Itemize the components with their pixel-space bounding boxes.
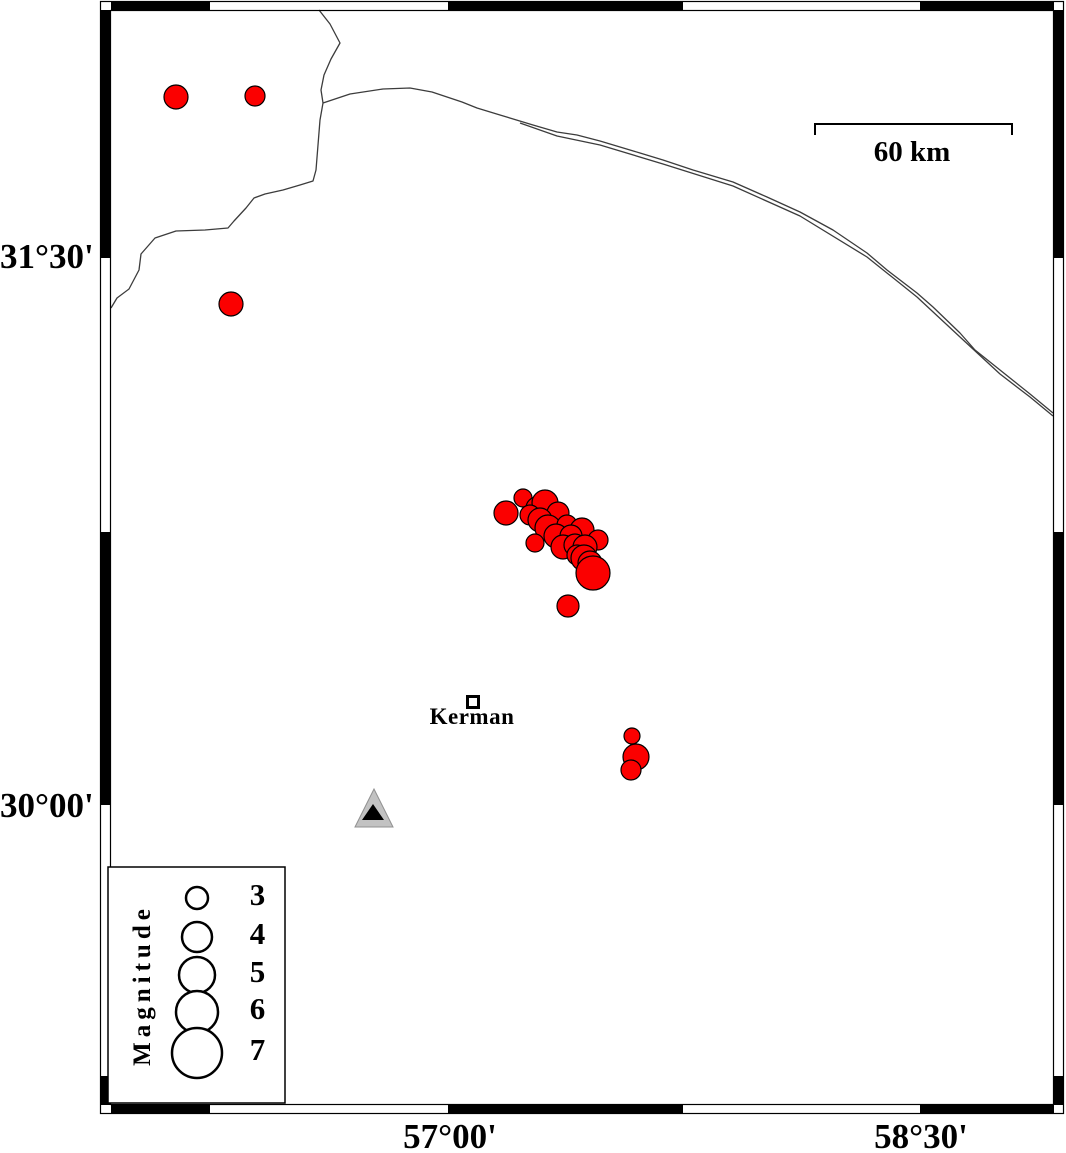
legend-circle-mag-4 (182, 922, 212, 952)
epicenter-dot (245, 86, 265, 106)
frame-tick-segment (448, 2, 683, 10)
scale-bar-bracket (815, 124, 1012, 135)
epicenter-dot (494, 501, 518, 525)
frame-tick-segment (111, 1105, 210, 1113)
epicenter-dot (526, 534, 544, 552)
legend-title: Magnitude (130, 870, 164, 1100)
lon-tick-label-57-00: 57°00' (360, 1119, 540, 1153)
city-label-kerman: Kerman (382, 705, 562, 728)
seismicity-map: 31°30' 30°00' 57°00' 58°30' 60 km Kerman… (0, 0, 1066, 1153)
legend-label-mag-4: 4 (235, 918, 280, 949)
frame-tick-segment (1054, 532, 1063, 805)
epicenter-dot (557, 595, 579, 617)
frame-tick-segment (111, 2, 210, 10)
epicenter-dot (576, 556, 610, 590)
legend-circle-mag-5 (179, 957, 215, 993)
fault-line (111, 10, 340, 308)
epicenter-dot (164, 85, 188, 109)
lon-tick-label-58-30: 58°30' (831, 1119, 1011, 1153)
legend-label-mag-6: 6 (235, 993, 280, 1024)
scale-bar-label: 60 km (822, 138, 1002, 167)
lat-tick-label-30-00: 30°00' (0, 788, 93, 823)
frame-tick-segment (920, 1105, 1054, 1113)
frame-tick-segment (101, 10, 110, 258)
frame-tick-segment (1054, 10, 1063, 258)
epicenter-dot (621, 760, 641, 780)
legend-label-mag-5: 5 (235, 956, 280, 987)
epicenter-dot (624, 728, 640, 744)
legend-label-mag-3: 3 (235, 879, 280, 910)
epicenter-dot (219, 292, 243, 316)
legend-circle-mag-6 (176, 991, 218, 1033)
legend-circle-mag-3 (186, 887, 208, 909)
frame-tick-segment (101, 532, 110, 805)
frame-tick-segment (448, 1105, 683, 1113)
frame-tick-segment (1054, 1076, 1063, 1105)
lat-tick-label-31-30: 31°30' (0, 239, 93, 274)
legend-circle-mag-7 (172, 1028, 222, 1078)
legend-label-mag-7: 7 (235, 1034, 280, 1065)
frame-tick-segment (920, 2, 1054, 10)
